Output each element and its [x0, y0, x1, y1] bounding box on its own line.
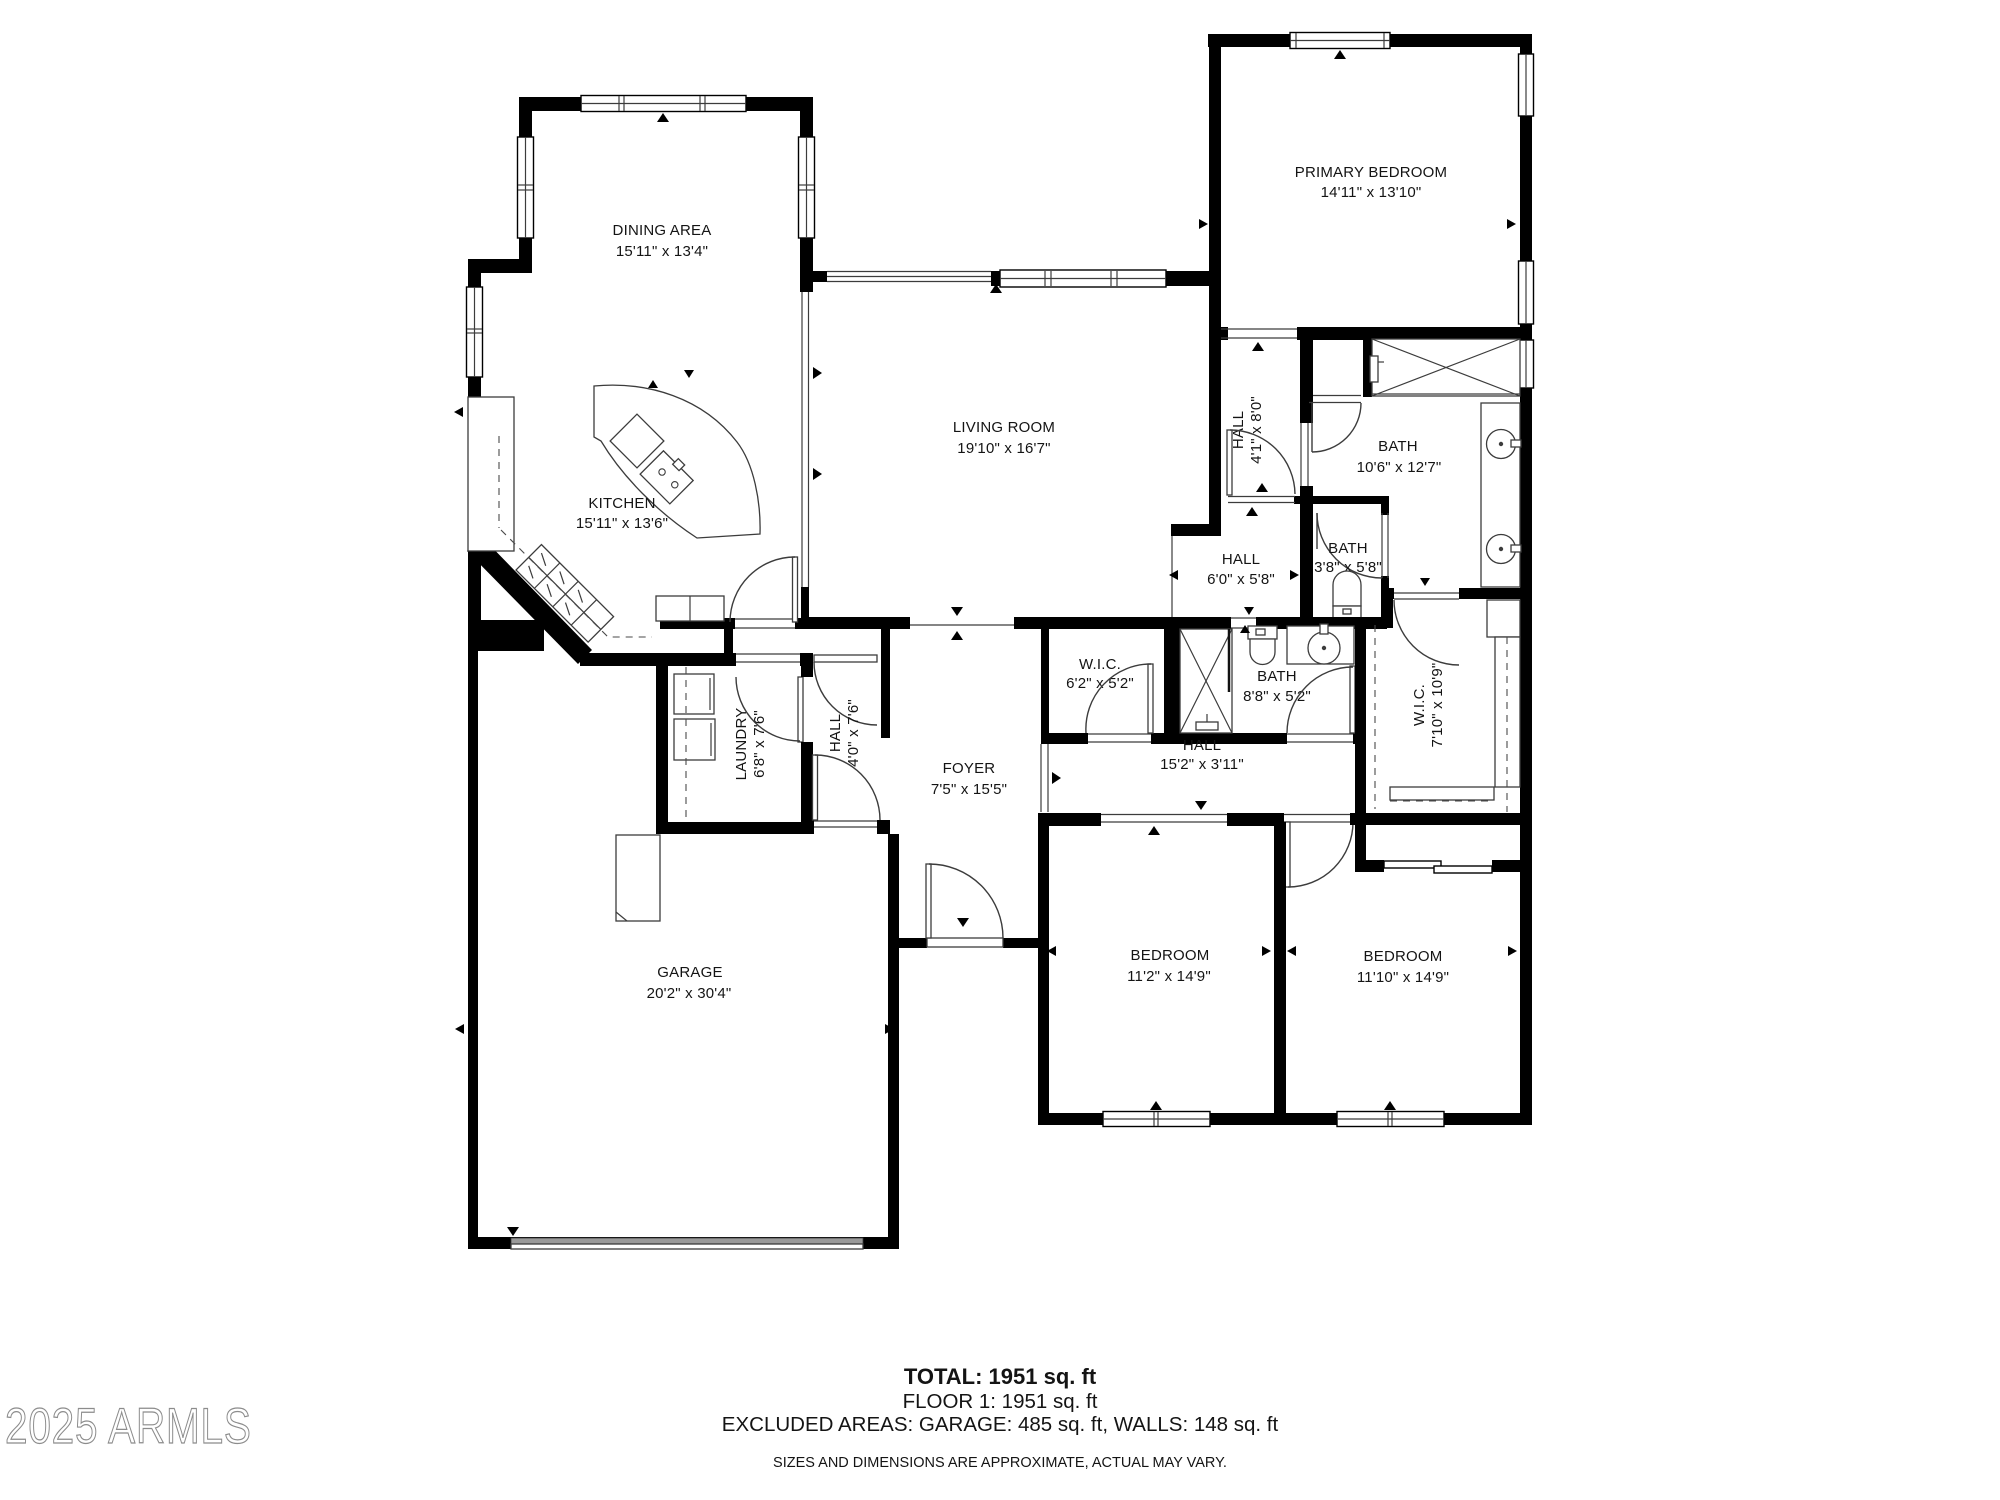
svg-text:BATH: BATH: [1257, 668, 1297, 685]
svg-text:8'8" x 5'2": 8'8" x 5'2": [1243, 688, 1311, 705]
svg-text:LIVING ROOM: LIVING ROOM: [953, 419, 1055, 436]
svg-text:19'10" x 16'7": 19'10" x 16'7": [957, 440, 1050, 457]
svg-text:HALL: HALL: [1183, 737, 1221, 754]
svg-text:2025 ARMLS: 2025 ARMLS: [5, 1398, 252, 1454]
svg-text:HALL: HALL: [1222, 551, 1260, 568]
svg-text:11'2" x 14'9": 11'2" x 14'9": [1127, 968, 1211, 985]
svg-text:20'2" x 30'4": 20'2" x 30'4": [647, 985, 732, 1002]
svg-text:W.I.C.: W.I.C.: [1079, 656, 1121, 673]
svg-text:SIZES AND DIMENSIONS ARE APPRO: SIZES AND DIMENSIONS ARE APPROXIMATE, AC…: [773, 1455, 1227, 1471]
svg-text:4'0" x 7'6": 4'0" x 7'6": [845, 699, 862, 767]
svg-text:BEDROOM: BEDROOM: [1364, 948, 1443, 965]
svg-text:FLOOR 1: 1951 sq. ft: FLOOR 1: 1951 sq. ft: [903, 1390, 1098, 1413]
svg-text:BATH: BATH: [1328, 540, 1368, 557]
svg-text:15'11" x 13'6": 15'11" x 13'6": [576, 515, 668, 532]
svg-text:7'5" x 15'5": 7'5" x 15'5": [931, 781, 1007, 798]
svg-text:DINING AREA: DINING AREA: [613, 222, 712, 239]
svg-text:15'2" x 3'11": 15'2" x 3'11": [1160, 756, 1244, 773]
svg-text:4'1" x 8'0": 4'1" x 8'0": [1248, 396, 1265, 464]
svg-text:11'10" x 14'9": 11'10" x 14'9": [1357, 969, 1449, 986]
svg-text:FOYER: FOYER: [943, 760, 996, 777]
svg-text:GARAGE: GARAGE: [657, 964, 722, 981]
svg-text:7'10" x 10'9": 7'10" x 10'9": [1429, 663, 1446, 748]
svg-text:W.I.C.: W.I.C.: [1411, 684, 1428, 726]
svg-text:BEDROOM: BEDROOM: [1131, 947, 1210, 964]
svg-text:PRIMARY BEDROOM: PRIMARY BEDROOM: [1295, 164, 1447, 181]
svg-text:15'11" x 13'4": 15'11" x 13'4": [616, 243, 708, 260]
svg-text:KITCHEN: KITCHEN: [588, 495, 655, 512]
svg-text:TOTAL: 1951 sq. ft: TOTAL: 1951 sq. ft: [904, 1364, 1097, 1389]
svg-text:10'6" x 12'7": 10'6" x 12'7": [1357, 459, 1442, 476]
svg-text:6'0" x 5'8": 6'0" x 5'8": [1207, 571, 1275, 588]
svg-text:EXCLUDED AREAS: GARAGE: 485 sq: EXCLUDED AREAS: GARAGE: 485 sq. ft, WALL…: [722, 1413, 1279, 1436]
svg-text:HALL: HALL: [827, 714, 844, 752]
svg-text:14'11" x 13'10": 14'11" x 13'10": [1321, 184, 1422, 201]
svg-text:LAUNDRY: LAUNDRY: [733, 708, 750, 781]
svg-text:6'8" x 7'6": 6'8" x 7'6": [751, 710, 768, 778]
svg-text:BATH: BATH: [1378, 438, 1418, 455]
